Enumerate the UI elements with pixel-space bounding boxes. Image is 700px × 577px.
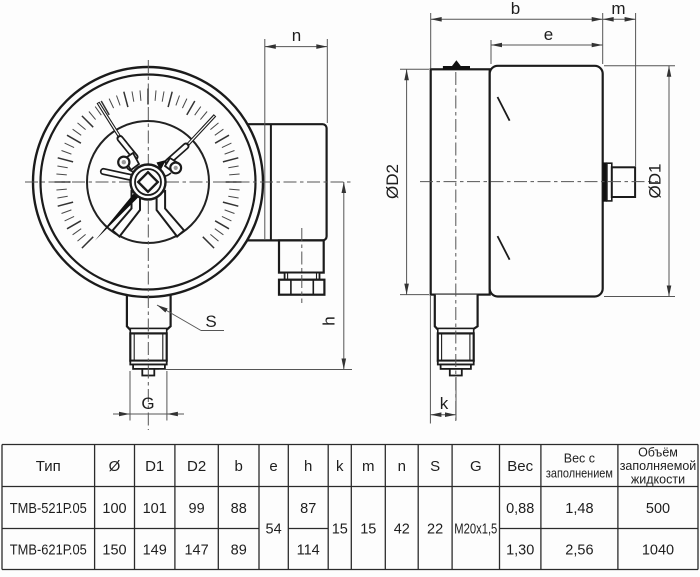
svg-text:54: 54	[266, 522, 282, 538]
svg-text:101: 101	[143, 501, 167, 517]
svg-text:k: k	[440, 394, 449, 413]
svg-text:M20x1,5: M20x1,5	[454, 522, 497, 538]
svg-text:99: 99	[189, 501, 205, 517]
svg-text:100: 100	[102, 501, 126, 517]
svg-text:Вес с: Вес с	[564, 452, 595, 466]
svg-text:42: 42	[394, 522, 410, 538]
svg-text:500: 500	[646, 501, 670, 517]
svg-text:ØD1: ØD1	[646, 164, 665, 199]
svg-text:15: 15	[332, 522, 348, 538]
svg-text:k: k	[336, 458, 344, 475]
svg-text:G: G	[141, 394, 154, 413]
svg-text:h: h	[304, 458, 312, 475]
svg-text:88: 88	[231, 501, 247, 517]
svg-text:e: e	[544, 25, 553, 44]
svg-text:Вес: Вес	[507, 458, 533, 475]
svg-text:Ø: Ø	[109, 458, 121, 475]
svg-text:15: 15	[360, 522, 376, 538]
svg-text:87: 87	[300, 501, 316, 517]
svg-text:заполняемой: заполняемой	[620, 459, 697, 473]
svg-text:жидкости: жидкости	[631, 473, 685, 487]
svg-text:S: S	[430, 458, 440, 475]
svg-text:ТМВ-621Р.05: ТМВ-621Р.05	[10, 543, 87, 559]
svg-text:Тип: Тип	[36, 458, 61, 475]
svg-text:1,30: 1,30	[506, 543, 534, 559]
svg-text:b: b	[511, 0, 520, 18]
svg-text:2,56: 2,56	[565, 543, 593, 559]
svg-text:n: n	[292, 26, 301, 45]
svg-text:D1: D1	[145, 458, 164, 475]
svg-text:1040: 1040	[642, 543, 674, 559]
svg-text:89: 89	[231, 543, 247, 559]
svg-text:Объём: Объём	[638, 446, 678, 460]
svg-text:D2: D2	[187, 458, 206, 475]
svg-text:заполнением: заполнением	[546, 467, 613, 481]
svg-text:ТМВ-521Р.05: ТМВ-521Р.05	[10, 501, 87, 517]
svg-text:m: m	[611, 0, 625, 18]
svg-text:1,48: 1,48	[565, 501, 593, 517]
svg-text:22: 22	[427, 522, 443, 538]
svg-text:147: 147	[184, 543, 208, 559]
svg-text:G: G	[470, 458, 482, 475]
svg-text:n: n	[398, 458, 406, 475]
svg-text:0,88: 0,88	[506, 501, 534, 517]
svg-text:h: h	[320, 316, 339, 325]
svg-text:e: e	[269, 458, 277, 475]
svg-text:114: 114	[297, 543, 320, 559]
svg-text:b: b	[235, 458, 243, 475]
svg-text:S: S	[205, 312, 216, 331]
svg-text:150: 150	[102, 543, 126, 559]
svg-text:149: 149	[143, 543, 167, 559]
svg-text:ØD2: ØD2	[383, 164, 402, 199]
svg-text:m: m	[362, 458, 375, 475]
